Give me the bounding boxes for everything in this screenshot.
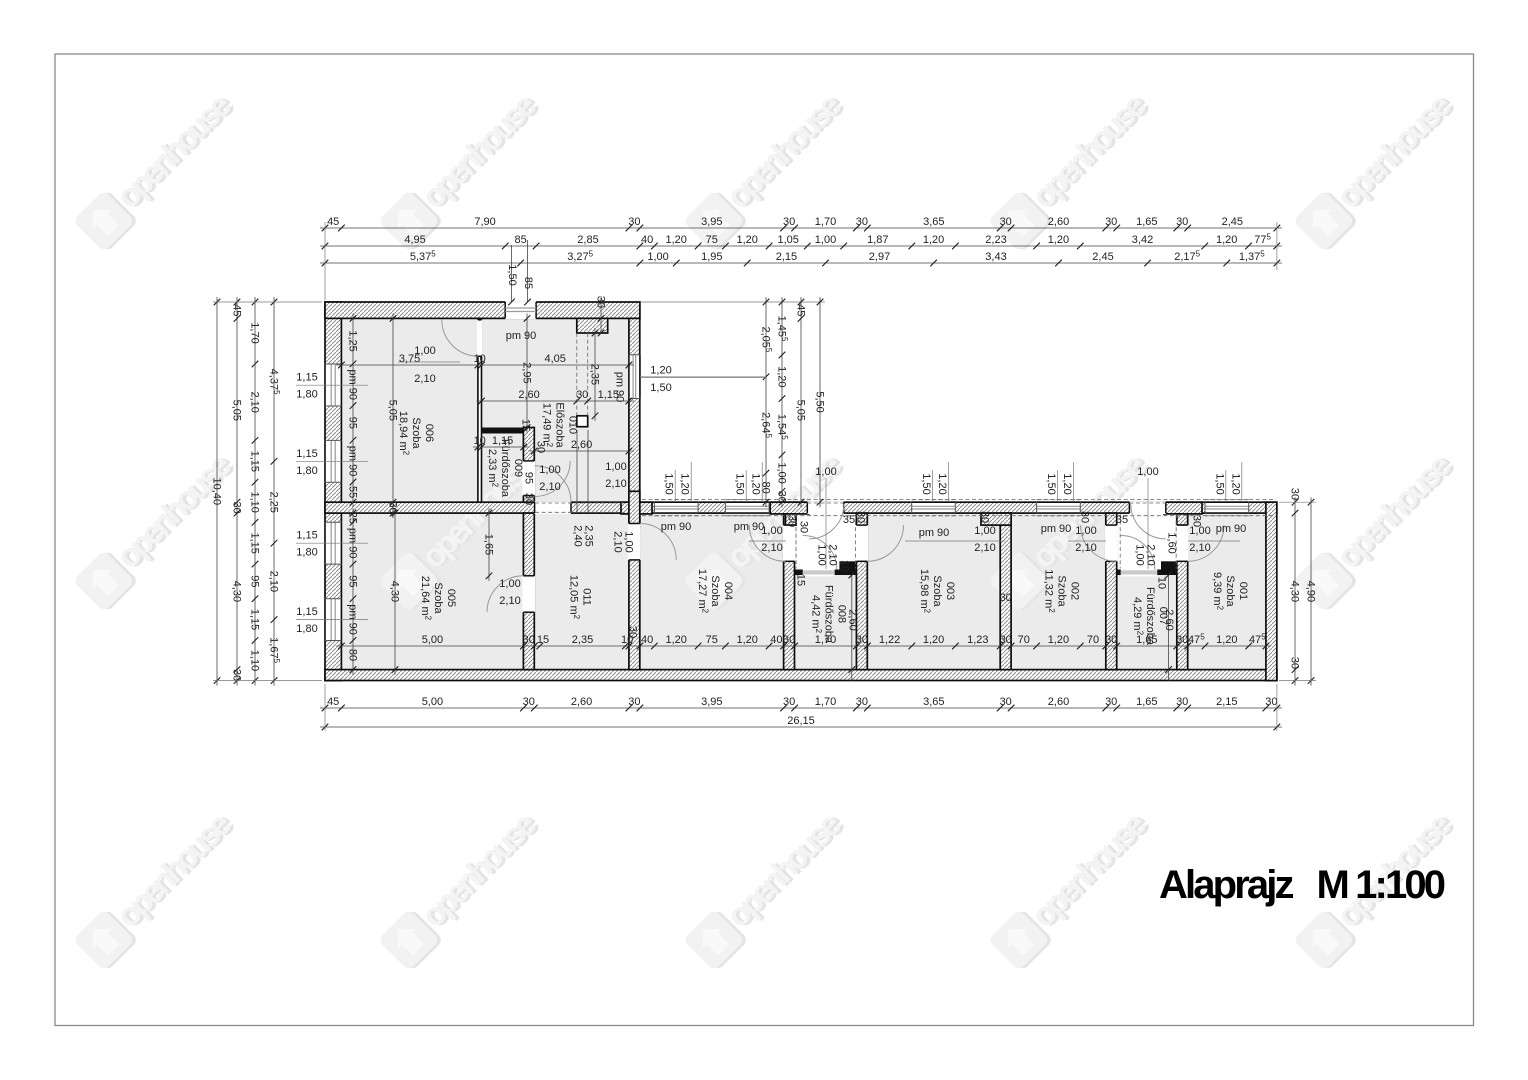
svg-text:1,20: 1,20 [936,473,948,494]
svg-text:2,15: 2,15 [1216,696,1237,708]
svg-text:4,90: 4,90 [1305,581,1317,602]
svg-text:85: 85 [514,234,526,246]
svg-text:2,10: 2,10 [761,542,782,554]
svg-text:2,15: 2,15 [776,251,797,263]
svg-text:2,10: 2,10 [1075,542,1096,554]
svg-text:30: 30 [1079,511,1091,523]
svg-text:1,50: 1,50 [1045,473,1057,494]
svg-text:10: 10 [1156,577,1168,589]
svg-text:30: 30 [1105,216,1117,228]
svg-text:005: 005 [445,589,457,607]
svg-text:1,50: 1,50 [650,382,671,394]
svg-text:4,30: 4,30 [1289,581,1301,602]
svg-text:Szoba: Szoba [1056,575,1068,607]
svg-text:Alaprajz M 1:100: Alaprajz M 1:100 [1159,863,1446,907]
svg-text:10,40: 10,40 [211,478,223,506]
svg-text:1,00: 1,00 [414,345,435,357]
svg-text:3,65: 3,65 [923,216,944,228]
svg-text:002: 002 [1069,582,1081,600]
svg-text:2,10: 2,10 [605,478,626,490]
svg-text:1,05: 1,05 [777,234,798,246]
svg-text:Szoba: Szoba [931,575,943,607]
svg-text:30: 30 [856,634,868,646]
svg-text:30: 30 [1000,592,1012,604]
svg-text:30: 30 [628,696,640,708]
svg-text:70: 70 [1018,634,1030,646]
svg-text:45: 45 [231,304,243,316]
svg-text:30: 30 [595,296,607,308]
svg-text:1,00: 1,00 [776,462,788,483]
svg-text:40: 40 [641,634,653,646]
svg-text:2,60: 2,60 [518,389,539,401]
svg-text:1,15: 1,15 [249,451,261,472]
svg-text:95: 95 [249,575,261,587]
svg-text:3,95: 3,95 [701,216,722,228]
svg-text:001: 001 [1237,582,1249,600]
svg-text:2,10: 2,10 [268,571,280,592]
svg-text:1,20: 1,20 [679,473,691,494]
svg-text:30: 30 [523,634,535,646]
svg-text:4,30: 4,30 [389,581,401,602]
svg-text:2,10: 2,10 [539,481,560,493]
svg-text:15,98 m2: 15,98 m2 [918,569,932,614]
svg-text:2,10: 2,10 [612,531,624,552]
svg-text:30: 30 [535,441,547,453]
svg-text:26,15: 26,15 [787,715,815,727]
svg-text:30: 30 [1176,216,1188,228]
svg-text:2,97: 2,97 [869,251,890,263]
svg-text:30: 30 [1289,488,1301,500]
svg-text:1,00: 1,00 [499,578,520,590]
svg-text:10: 10 [474,353,486,365]
svg-text:30: 30 [1000,216,1012,228]
svg-text:1,00: 1,00 [539,464,560,476]
svg-text:2,10: 2,10 [1145,544,1157,565]
svg-text:1,00: 1,00 [815,466,836,478]
svg-text:30: 30 [776,491,788,503]
svg-text:Szoba: Szoba [410,417,422,449]
svg-text:010: 010 [567,416,579,434]
svg-text:pm 90: pm 90 [614,372,626,403]
svg-text:1,95: 1,95 [701,251,722,263]
svg-text:1,20: 1,20 [650,365,671,377]
svg-text:1,80: 1,80 [296,547,317,559]
svg-text:1,25: 1,25 [347,330,359,351]
svg-text:Előszoba: Előszoba [554,402,566,448]
svg-text:2,35: 2,35 [589,364,601,385]
svg-text:1,00: 1,00 [974,525,995,537]
svg-text:30: 30 [798,521,810,533]
svg-text:30: 30 [979,511,991,523]
svg-text:1,15: 1,15 [249,532,261,553]
svg-text:30: 30 [783,216,795,228]
svg-text:15: 15 [520,419,532,431]
svg-text:pm 90: pm 90 [1041,523,1072,535]
svg-text:30: 30 [1000,696,1012,708]
svg-text:1,50: 1,50 [920,473,932,494]
svg-text:30: 30 [523,696,535,708]
svg-text:2,33 m2: 2,33 m2 [486,449,500,488]
svg-text:1,00: 1,00 [816,544,828,565]
svg-text:1,65: 1,65 [1136,216,1157,228]
svg-text:30: 30 [231,669,243,681]
svg-text:1,20: 1,20 [1061,473,1073,494]
svg-text:pm 90: pm 90 [347,369,359,400]
svg-text:85: 85 [522,277,534,289]
svg-text:1,00: 1,00 [1075,525,1096,537]
svg-text:3,42: 3,42 [1132,234,1153,246]
svg-text:pm 90: pm 90 [1216,523,1247,535]
svg-text:17,49 m2: 17,49 m2 [541,403,555,448]
svg-text:30: 30 [855,511,867,523]
svg-text:1,23: 1,23 [967,634,988,646]
svg-text:1,20: 1,20 [923,634,944,646]
svg-text:35: 35 [843,514,855,526]
svg-text:1,50: 1,50 [506,264,518,285]
svg-text:1,20: 1,20 [665,234,686,246]
svg-text:Szoba: Szoba [1224,575,1236,607]
svg-text:pm 90: pm 90 [347,446,359,477]
svg-text:1,50: 1,50 [734,473,746,494]
svg-text:7,90: 7,90 [474,216,495,228]
svg-text:30: 30 [856,696,868,708]
svg-text:1,00: 1,00 [623,531,635,552]
svg-text:21,64 m2: 21,64 m2 [419,576,433,621]
svg-text:pm 90: pm 90 [506,330,537,342]
svg-text:4,29 m2: 4,29 m2 [1131,597,1145,636]
svg-text:30: 30 [576,389,588,401]
svg-text:pm 90: pm 90 [734,521,765,533]
svg-text:1,20: 1,20 [750,473,762,494]
svg-text:5,05: 5,05 [795,400,807,421]
svg-text:2,10: 2,10 [249,391,261,412]
svg-text:1,15: 1,15 [296,606,317,618]
svg-text:1,70: 1,70 [815,696,836,708]
svg-text:40: 40 [770,634,782,646]
svg-text:2,10: 2,10 [1189,542,1210,554]
svg-text:007: 007 [1157,607,1169,625]
svg-text:10: 10 [474,435,486,447]
svg-text:3,95: 3,95 [701,696,722,708]
svg-text:1,22: 1,22 [879,634,900,646]
svg-text:1,00: 1,00 [647,251,668,263]
svg-text:30: 30 [231,501,243,513]
svg-text:2,60: 2,60 [1048,216,1069,228]
svg-text:30: 30 [1176,634,1188,646]
svg-text:5,50: 5,50 [814,391,826,412]
svg-text:15: 15 [795,574,807,586]
svg-text:Fürdőszoba: Fürdőszoba [823,585,835,644]
svg-text:30: 30 [1176,696,1188,708]
svg-text:2,40: 2,40 [572,525,584,546]
svg-text:009: 009 [512,459,524,477]
svg-text:2,85: 2,85 [577,234,598,246]
svg-text:1,20: 1,20 [1048,634,1069,646]
svg-text:3,65: 3,65 [923,696,944,708]
svg-text:30: 30 [1265,696,1277,708]
svg-text:1,65: 1,65 [1136,696,1157,708]
svg-text:75: 75 [706,634,718,646]
svg-text:95: 95 [347,575,359,587]
svg-text:4,05: 4,05 [544,353,565,365]
svg-text:1,20: 1,20 [1216,634,1237,646]
svg-text:1,15: 1,15 [296,448,317,460]
svg-text:5,05: 5,05 [231,400,243,421]
svg-text:2,35: 2,35 [572,634,593,646]
svg-text:1,80: 1,80 [296,623,317,635]
svg-text:2,10: 2,10 [499,595,520,607]
svg-text:1,20: 1,20 [1229,473,1241,494]
svg-text:30: 30 [786,515,798,527]
svg-text:30: 30 [783,634,795,646]
svg-text:003: 003 [944,582,956,600]
svg-text:004: 004 [722,582,734,600]
svg-text:25: 25 [347,512,359,524]
svg-text:2,35: 2,35 [583,525,595,546]
svg-text:2,95: 2,95 [521,362,533,383]
svg-text:pm 90: pm 90 [919,527,950,539]
svg-text:Szoba: Szoba [709,575,721,607]
svg-text:2,10: 2,10 [414,373,435,385]
svg-text:2,25: 2,25 [268,491,280,512]
svg-text:4,95: 4,95 [404,234,425,246]
svg-text:1,10: 1,10 [249,491,261,512]
svg-text:12,05 m2: 12,05 m2 [568,575,582,620]
svg-text:30: 30 [1000,634,1012,646]
svg-text:30: 30 [1105,634,1117,646]
svg-text:75: 75 [706,234,718,246]
svg-text:pm 90: pm 90 [347,528,359,559]
svg-text:1,20: 1,20 [923,234,944,246]
svg-text:40: 40 [641,234,653,246]
svg-text:30: 30 [1105,696,1117,708]
svg-text:2,60: 2,60 [571,439,592,451]
svg-text:1,00: 1,00 [1189,525,1210,537]
svg-text:5,00: 5,00 [422,634,443,646]
svg-text:1,00: 1,00 [761,525,782,537]
svg-text:30: 30 [783,696,795,708]
svg-text:30: 30 [628,216,640,228]
svg-text:1,50: 1,50 [1213,473,1225,494]
svg-text:45: 45 [795,304,807,316]
svg-text:1,65: 1,65 [483,534,495,555]
svg-text:1,87: 1,87 [867,234,888,246]
svg-text:1,10: 1,10 [249,650,261,671]
svg-text:17,27 m2: 17,27 m2 [696,569,710,614]
svg-text:1,15: 1,15 [296,372,317,384]
svg-text:1,15: 1,15 [296,530,317,542]
svg-text:1,80: 1,80 [296,465,317,477]
svg-text:1,80: 1,80 [296,389,317,401]
svg-text:30: 30 [1289,657,1301,669]
svg-text:45: 45 [327,696,339,708]
svg-text:011: 011 [581,588,593,606]
svg-text:95: 95 [347,417,359,429]
svg-text:2,23: 2,23 [985,234,1006,246]
svg-text:11,32 m2: 11,32 m2 [1043,569,1057,613]
svg-text:10: 10 [839,560,851,572]
svg-text:30: 30 [523,493,535,505]
svg-text:45: 45 [327,216,339,228]
svg-text:Szoba: Szoba [432,582,444,614]
svg-text:1,70: 1,70 [249,322,261,343]
svg-text:30: 30 [627,626,639,638]
svg-text:5,05: 5,05 [387,400,399,421]
svg-text:1,00: 1,00 [1134,544,1146,565]
svg-text:2,60: 2,60 [571,696,592,708]
svg-text:80: 80 [347,649,359,661]
svg-text:15: 15 [537,634,549,646]
svg-text:1,20: 1,20 [665,634,686,646]
svg-text:1,60: 1,60 [1166,532,1178,553]
svg-text:9,39 m2: 9,39 m2 [1211,572,1225,611]
svg-text:55: 55 [347,486,359,498]
svg-text:1,20: 1,20 [1048,234,1069,246]
svg-text:1,20: 1,20 [1216,234,1237,246]
svg-text:1,20: 1,20 [736,634,757,646]
svg-text:Fürdőszoba: Fürdőszoba [1144,587,1156,646]
svg-text:pm 90: pm 90 [661,521,692,533]
svg-text:2,45: 2,45 [1092,251,1113,263]
svg-text:2,45: 2,45 [1222,216,1243,228]
svg-text:1,00: 1,00 [815,234,836,246]
svg-text:1,00: 1,00 [605,461,626,473]
svg-text:006: 006 [423,424,435,442]
svg-text:5,00: 5,00 [422,696,443,708]
svg-text:1,20: 1,20 [776,366,788,387]
svg-text:1,20: 1,20 [736,234,757,246]
svg-text:2,60: 2,60 [1048,696,1069,708]
svg-text:1,15: 1,15 [249,609,261,630]
svg-text:4,30: 4,30 [231,581,243,602]
svg-text:35: 35 [1116,514,1128,526]
svg-text:1,00: 1,00 [1137,466,1158,478]
svg-text:3,43: 3,43 [985,251,1006,263]
svg-text:pm 90: pm 90 [347,604,359,635]
svg-text:2,10: 2,10 [974,542,995,554]
svg-text:30: 30 [856,216,868,228]
svg-text:Fürdőszoba: Fürdőszoba [499,439,511,498]
svg-text:18,94 m2: 18,94 m2 [397,411,411,456]
svg-text:1,70: 1,70 [815,216,836,228]
svg-text:2,10: 2,10 [827,544,839,565]
svg-text:70: 70 [1087,634,1099,646]
svg-text:1,50: 1,50 [663,473,675,494]
svg-text:008: 008 [836,605,848,623]
svg-text:4,42 m2: 4,42 m2 [810,595,824,634]
